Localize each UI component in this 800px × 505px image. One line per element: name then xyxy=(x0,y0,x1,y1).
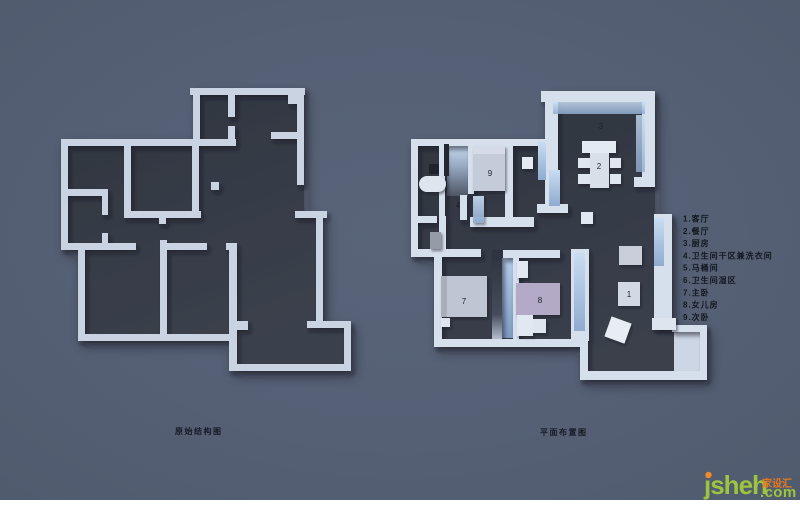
svg-text:4: 4 xyxy=(456,201,461,210)
svg-text:8.女儿房: 8.女儿房 xyxy=(683,300,719,310)
svg-text:2.餐厅: 2.餐厅 xyxy=(683,226,710,236)
svg-text:9.次卧: 9.次卧 xyxy=(683,312,710,322)
svg-text:5.马桶间: 5.马桶间 xyxy=(683,263,719,273)
svg-text:1.客厅: 1.客厅 xyxy=(683,214,710,224)
svg-text:2: 2 xyxy=(597,162,602,171)
svg-text:.com: .com xyxy=(760,484,797,500)
svg-text:8: 8 xyxy=(538,296,543,305)
svg-text:7.主卧: 7.主卧 xyxy=(683,287,710,297)
svg-text:9: 9 xyxy=(488,169,493,178)
svg-text:7: 7 xyxy=(462,297,467,306)
svg-text:1: 1 xyxy=(627,290,632,299)
svg-text:jsheh: jsheh xyxy=(703,470,767,500)
svg-text:3: 3 xyxy=(599,122,604,131)
svg-text:3.厨房: 3.厨房 xyxy=(683,238,710,248)
svg-text:4.卫生间干区兼洗衣间: 4.卫生间干区兼洗衣间 xyxy=(683,250,773,260)
svg-text:平面布置图: 平面布置图 xyxy=(540,427,588,437)
svg-text:6.卫生间湿区: 6.卫生间湿区 xyxy=(683,275,737,285)
svg-text:原始结构图: 原始结构图 xyxy=(175,426,223,436)
